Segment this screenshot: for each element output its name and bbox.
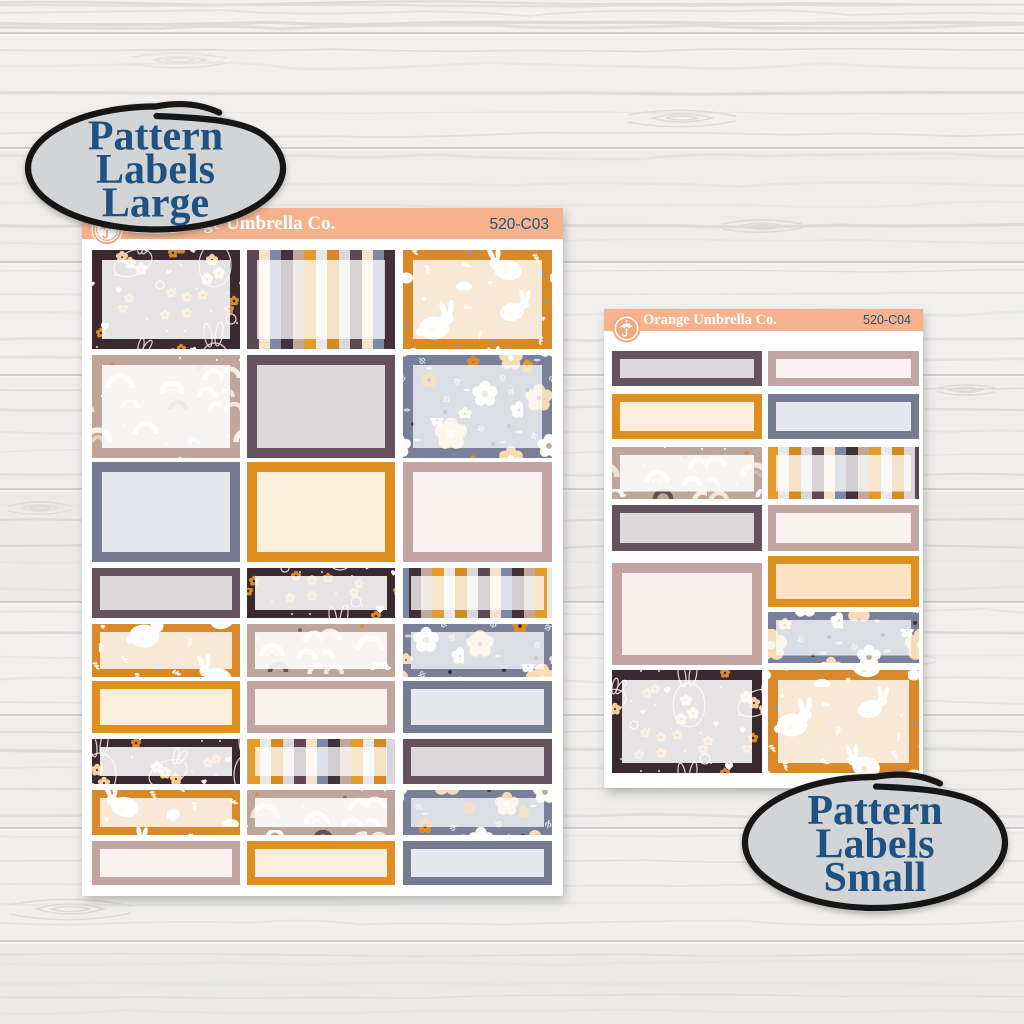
svg-text:Large: Large xyxy=(102,181,209,227)
svg-text:Small: Small xyxy=(824,855,927,901)
